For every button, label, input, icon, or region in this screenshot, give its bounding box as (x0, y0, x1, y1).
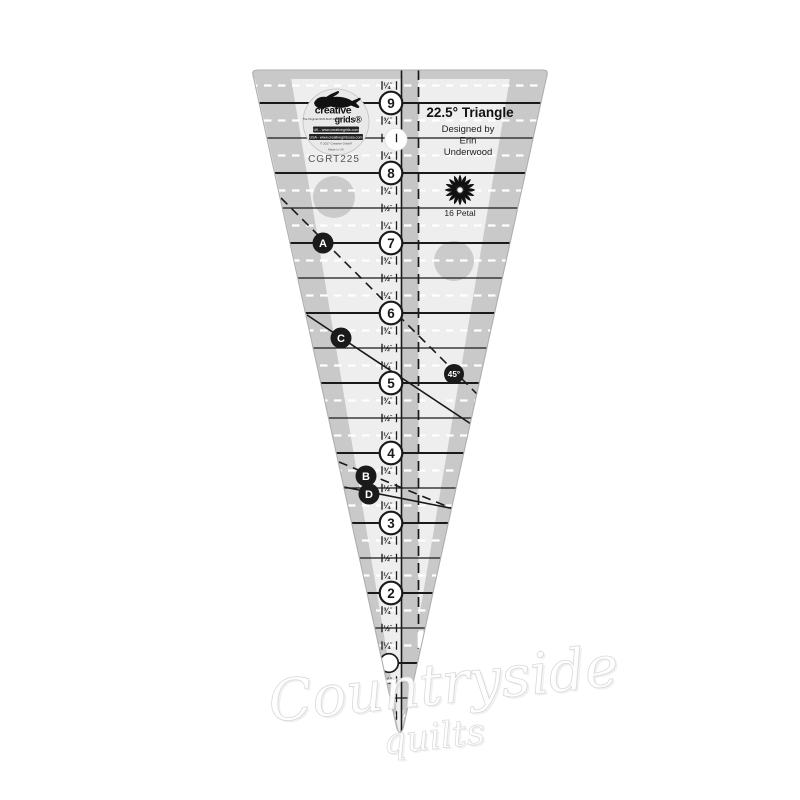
inch-number: 4 (387, 446, 395, 461)
grip-dot (434, 241, 474, 281)
model-number: CGRT225 (308, 154, 360, 165)
inch-number: 2 (387, 586, 395, 601)
inch-number: 7 (387, 236, 395, 251)
designed-by-label: Designed by (442, 124, 495, 135)
inch-number: 9 (387, 96, 395, 111)
brand-made-in: Made in UK (328, 148, 344, 152)
petal-label: 16 Petal (444, 208, 475, 218)
designer-first-name: Erin (460, 136, 477, 147)
brand-contact-uk: UK - www.creativegrids.com (314, 128, 359, 132)
inch-number: 8 (387, 166, 395, 181)
center-column-band (402, 70, 419, 710)
angle-badge-label: C (337, 333, 345, 345)
brand-copyright: © 2017 Creative Grids® (320, 142, 353, 146)
inch-number: 3 (387, 516, 395, 531)
angle-badge-label: 45° (448, 370, 460, 379)
angle-badge-label: D (365, 489, 373, 501)
product-title: 22.5° Triangle (426, 105, 514, 120)
ruler-image: ¼″9¾″¼″8¾″½″¼″7¾″½″¼″6¾″½″¼″5¾″½″¼″4¾″½″… (0, 0, 800, 800)
grip-dot (313, 176, 355, 218)
designer-last-name: Underwood (444, 147, 493, 158)
inch-number: 5 (387, 376, 395, 391)
watermark: Countryside Countryside quilts quilts (265, 633, 628, 776)
angle-badge-label: A (319, 238, 327, 250)
petal-center (457, 187, 462, 192)
angle-badge-label: B (362, 471, 370, 483)
product-photo: ¼″9¾″¼″8¾″½″¼″7¾″½″¼″6¾″½″¼″5¾″½″¼″4¾″½″… (0, 0, 800, 800)
brand-tagline: The Original NON-SLIP Ruler® (303, 117, 343, 121)
brand-logo: creative grids® The Original NON-SLIP Ru… (303, 89, 369, 155)
brand-contact-usa: USA - www.creativegridsusa.com (310, 136, 363, 140)
inch-number: 6 (387, 306, 395, 321)
